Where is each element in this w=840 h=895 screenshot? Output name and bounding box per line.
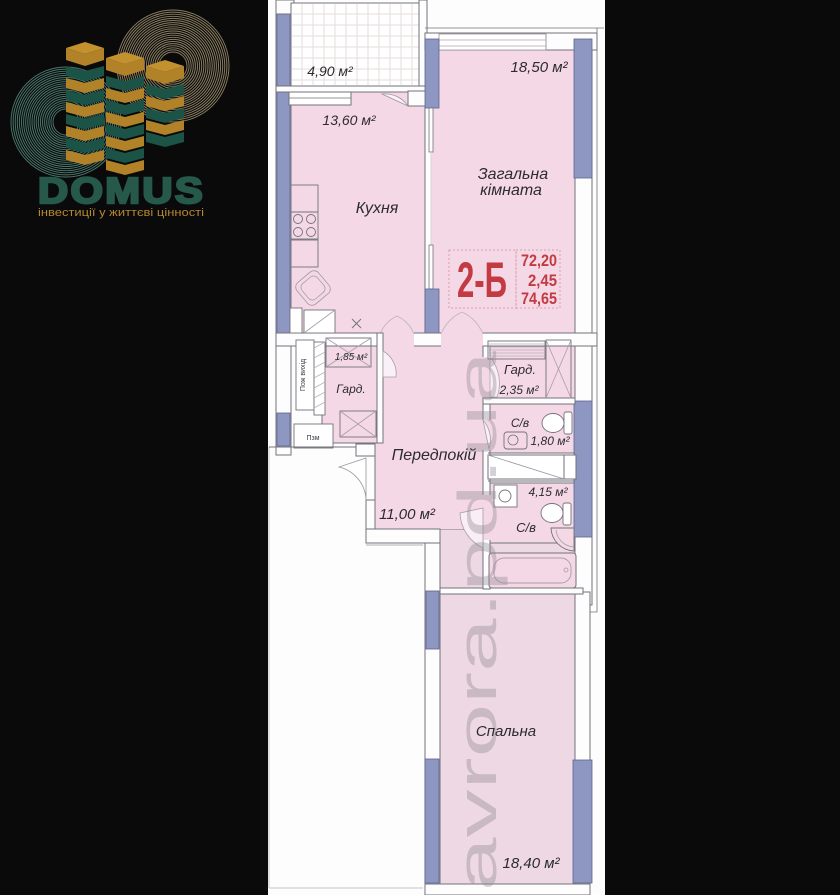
svg-text:4,90 м²: 4,90 м² — [307, 63, 354, 79]
svg-text:С/в: С/в — [511, 416, 529, 430]
svg-text:Загальна: Загальна — [478, 166, 548, 183]
svg-text:2,45: 2,45 — [528, 271, 557, 290]
svg-text:Гард.: Гард. — [336, 382, 365, 396]
svg-text:Пзм: Пзм — [306, 435, 319, 442]
svg-text:Кухня: Кухня — [356, 200, 399, 217]
svg-text:11,00 м²: 11,00 м² — [379, 506, 436, 523]
svg-text:DOMUS: DOMUS — [38, 170, 205, 211]
svg-text:1,85 м²: 1,85 м² — [335, 352, 368, 363]
svg-text:2,35 м²: 2,35 м² — [499, 383, 540, 397]
svg-text:Гард.: Гард. — [504, 362, 536, 377]
svg-text:72,20: 72,20 — [521, 251, 557, 270]
svg-text:18,40 м²: 18,40 м² — [503, 855, 561, 872]
svg-text:13,60 м²: 13,60 м² — [322, 112, 377, 128]
svg-text:18,50 м²: 18,50 м² — [511, 59, 569, 76]
svg-text:кімната: кімната — [480, 182, 542, 199]
svg-text:Спальна: Спальна — [476, 723, 536, 740]
svg-text:С/в: С/в — [516, 520, 536, 535]
svg-text:1,80 м²: 1,80 м² — [531, 434, 571, 448]
svg-text:інвестиції у життєві цінності: інвестиції у життєві цінності — [38, 207, 204, 219]
svg-text:Пож вихід: Пож вихід — [299, 359, 307, 391]
svg-text:Передпокій: Передпокій — [392, 447, 477, 464]
svg-text:4,15 м²: 4,15 м² — [529, 485, 569, 499]
svg-text:avrora.pd.ua: avrora.pd.ua — [446, 350, 508, 891]
svg-text:2-Б: 2-Б — [457, 252, 507, 308]
svg-text:74,65: 74,65 — [521, 289, 557, 308]
